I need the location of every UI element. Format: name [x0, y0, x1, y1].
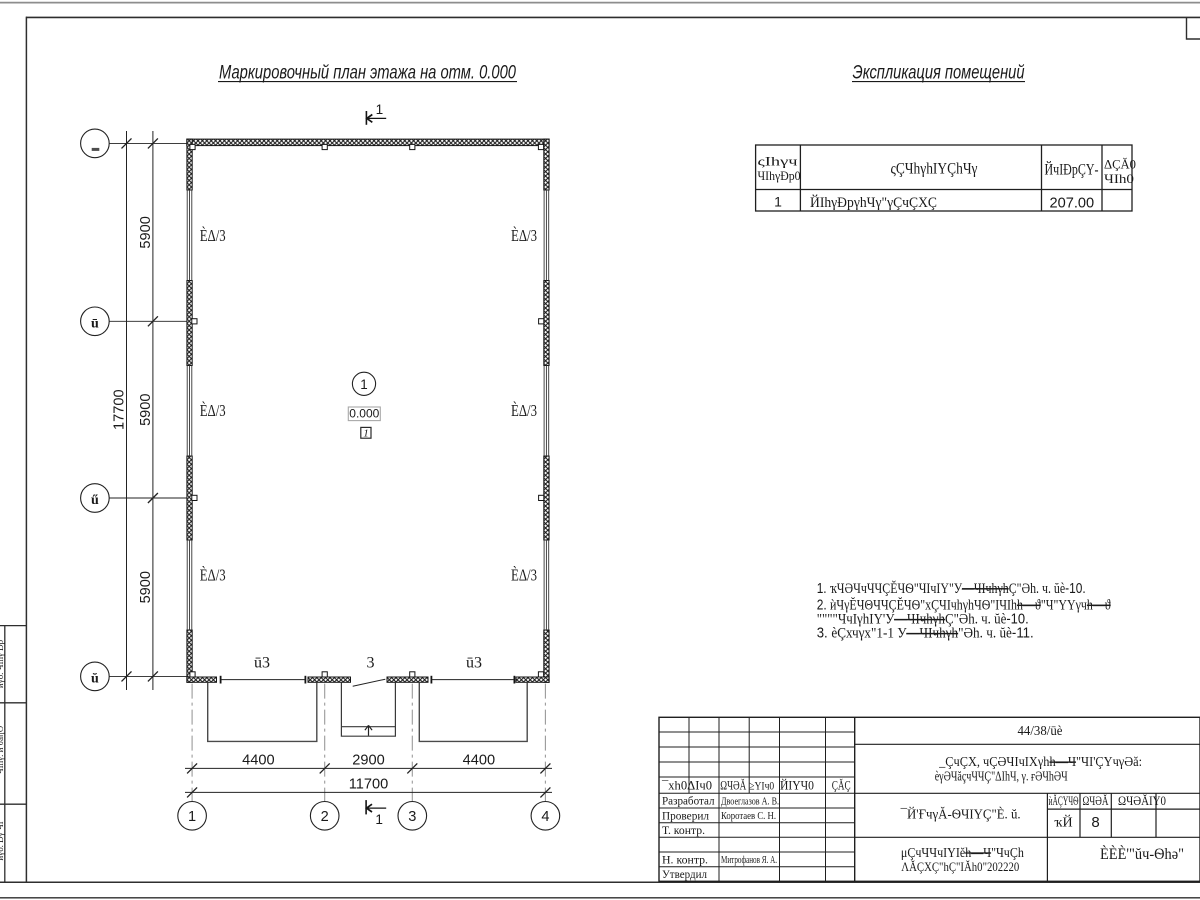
svg-text:ЧIhγÐp0: ЧIhγÐp0 — [758, 168, 801, 183]
svg-text:0.000: 0.000 — [349, 407, 379, 421]
svg-text:1: 1 — [376, 102, 384, 117]
svg-text:ΛĂÇХÇ"hÇ"IĂh0"202220: ΛĂÇХÇ"hÇ"IĂh0"202220 — [901, 860, 1019, 874]
svg-text:ÈΔ/3: ÈΔ/3 — [511, 565, 537, 584]
svg-text:ū: ū — [91, 316, 99, 331]
svg-text:3: 3 — [408, 809, 416, 825]
svg-text:ҡЙ: ҡЙ — [1054, 813, 1072, 830]
svg-text:ѝγϑ. ЧIhγ Ðp: ѝγϑ. ЧIhγ Ðp — [0, 639, 5, 688]
svg-text:ΔÇĂ0: ΔÇĂ0 — [1104, 157, 1136, 171]
svg-text:ςIhγч: ςIhγч — [758, 153, 799, 168]
svg-text:ѝγϑ. Ðγ ЧI: ѝγϑ. Ðγ ЧI — [0, 821, 5, 860]
svg-text:¯Й'ҒчγĂ-ѲЧIҮÇ"È. ŭ.: ¯Й'ҒчγĂ-ѲЧIҮÇ"È. ŭ. — [900, 806, 1021, 823]
svg-text:11700: 11700 — [349, 777, 389, 793]
svg-text:ЙIҮЧ0: ЙIҮЧ0 — [780, 778, 814, 792]
svg-text:4400: 4400 — [463, 753, 495, 769]
svg-text:ΩЧƏĂ: ΩЧƏĂ — [720, 778, 746, 792]
svg-text:ÇĂÇ: ÇĂÇ — [832, 778, 851, 792]
svg-text:8: 8 — [1091, 814, 1099, 831]
svg-text:Митрофанов Я. А.: Митрофанов Я. А. — [721, 854, 777, 866]
svg-text:3: 3 — [367, 655, 375, 672]
svg-text:3. ѐÇхчγх"1-1 У—ЧIчhγh"Əh. ч.: 3. ѐÇхчγх"1-1 У—ЧIчhγh"Əh. ч. ŭè-11. — [817, 626, 1034, 642]
svg-text:ΩЧƏĂIY0: ΩЧƏĂIY0 — [1118, 793, 1166, 808]
svg-text:≥YIч0: ≥YIч0 — [749, 778, 774, 792]
svg-text:ū3: ū3 — [254, 655, 270, 672]
svg-text:5900: 5900 — [138, 393, 154, 425]
svg-text:4: 4 — [541, 809, 549, 825]
svg-text:1. ҡЧӘЧчЧЧÇĔЧѲ"ЧIчIY"У—ЧIчhγhÇ: 1. ҡЧӘЧчЧЧÇĔЧѲ"ЧIчIY"У—ЧIчhγhÇ"Əh. ч. ŭè… — [817, 580, 1086, 597]
svg-text:ŭ: ŭ — [91, 671, 99, 686]
svg-text:Проверил: Проверил — [662, 808, 709, 822]
svg-text:ΩЧƏĂ: ΩЧƏĂ — [1083, 793, 1109, 808]
svg-text:ѐγƏЧăçчЧЧÇ"ΔIhЧ, γ. ғƏЧhƏЧ: ѐγƏЧăçчЧЧÇ"ΔIhЧ, γ. ғƏЧhƏЧ — [935, 769, 1068, 784]
svg-text:Утвердил: Утвердил — [662, 867, 707, 881]
svg-text:1: 1 — [360, 377, 367, 392]
svg-text:ű: ű — [91, 493, 99, 508]
svg-text:1: 1 — [774, 194, 782, 210]
svg-text:1: 1 — [363, 427, 369, 439]
svg-text:ū3: ū3 — [466, 655, 482, 672]
svg-text:5900: 5900 — [138, 216, 154, 248]
svg-text:ѝĂÇҮЧѲ: ѝĂÇҮЧѲ — [1049, 793, 1079, 808]
svg-text:ЧIhγ. ѝ θăηƏ: ЧIhγ. ѝ θăηƏ — [0, 725, 5, 774]
svg-text:1: 1 — [188, 809, 196, 825]
svg-text:Экспликация помещений: Экспликация помещений — [853, 63, 1025, 84]
svg-text:Н. контр.: Н. контр. — [662, 852, 708, 866]
svg-text:Т. контр.: Т. контр. — [662, 823, 705, 837]
svg-text:4400: 4400 — [242, 753, 274, 769]
svg-text:17700: 17700 — [111, 389, 127, 430]
svg-text:ÈΔ/3: ÈΔ/3 — [511, 226, 537, 245]
svg-text:ЙIhγÐpγhЧγ"γÇчÇXÇ: ЙIhγÐpγhЧγ"γÇчÇXÇ — [810, 194, 937, 211]
svg-text:Разработал: Разработал — [662, 794, 715, 808]
svg-text:ÈΔ/3: ÈΔ/3 — [200, 401, 226, 420]
svg-text:44/38/ūè: 44/38/ūè — [1018, 723, 1063, 738]
svg-text:ÈΔ/3: ÈΔ/3 — [511, 401, 537, 420]
svg-text:ςÇЧhγhIYÇhЧγ: ςÇЧhγhIYÇhЧγ — [891, 161, 978, 178]
svg-text:ÈÈÈ'"ŭч-Ѳhə": ÈÈÈ'"ŭч-Ѳhə" — [1100, 844, 1184, 863]
svg-text:_ÇчÇХ, чÇƏЧIчIХγhh—Ч"ЧI'ÇҮчγƏă: _ÇчÇХ, чÇƏЧIчIХγhh—Ч"ЧI'ÇҮчγƏă: — [938, 755, 1142, 770]
svg-text:Коротаев С. Н.: Коротаев С. Н. — [721, 810, 776, 822]
svg-text:ÈΔ/3: ÈΔ/3 — [200, 565, 226, 584]
svg-text:ЧIh0: ЧIh0 — [1104, 172, 1134, 186]
svg-text:ÈΔ/3: ÈΔ/3 — [200, 226, 226, 245]
svg-text:2: 2 — [321, 809, 329, 825]
svg-text:1: 1 — [375, 812, 383, 827]
svg-text:μÇчЧЧчIYIĕh—Ч"ЧчÇh: μÇчЧЧчIYIĕh—Ч"ЧчÇh — [901, 845, 1024, 860]
svg-text:Двоеглазов А. В.: Двоеглазов А. В. — [721, 795, 779, 807]
svg-text:Маркировочный план этажа на от: Маркировочный план этажа на отм. 0.000 — [219, 63, 516, 84]
svg-text:5900: 5900 — [138, 571, 154, 603]
svg-text:ЙчIÐpÇҮ-: ЙчIÐpÇҮ- — [1045, 162, 1099, 179]
svg-text:¯хh0ΔIч0: ¯хh0ΔIч0 — [661, 778, 712, 792]
svg-text:207.00: 207.00 — [1049, 195, 1094, 211]
svg-text:2900: 2900 — [352, 753, 384, 769]
